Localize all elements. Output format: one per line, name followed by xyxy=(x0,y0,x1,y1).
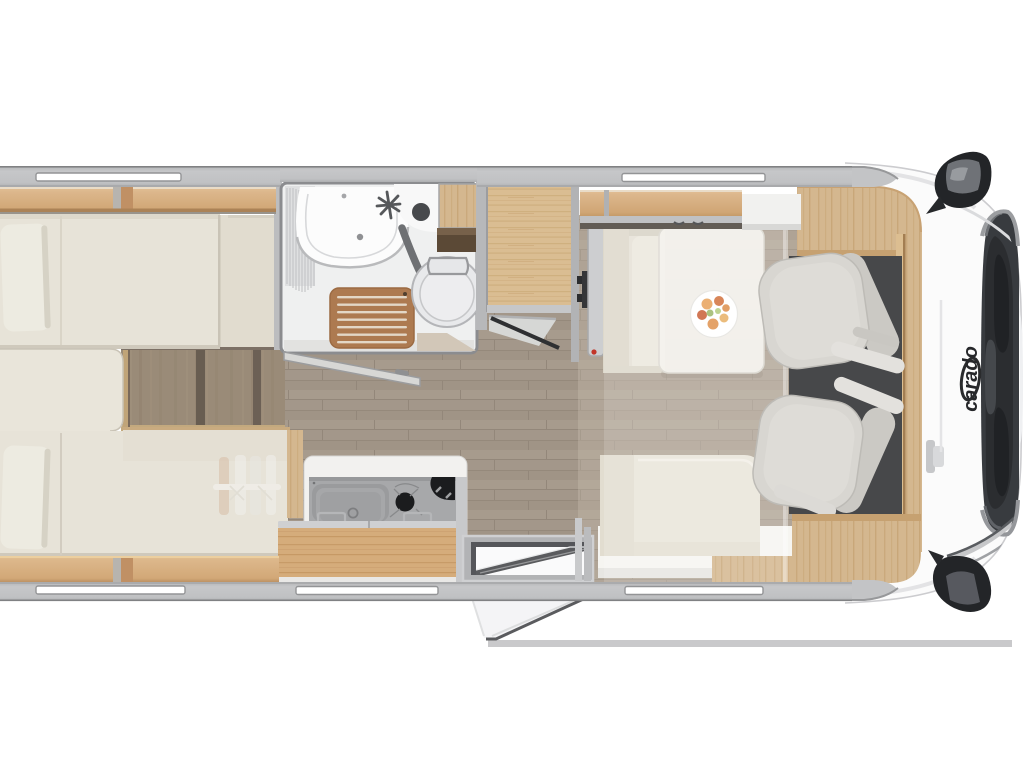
svg-text:carado: carado xyxy=(960,346,982,412)
